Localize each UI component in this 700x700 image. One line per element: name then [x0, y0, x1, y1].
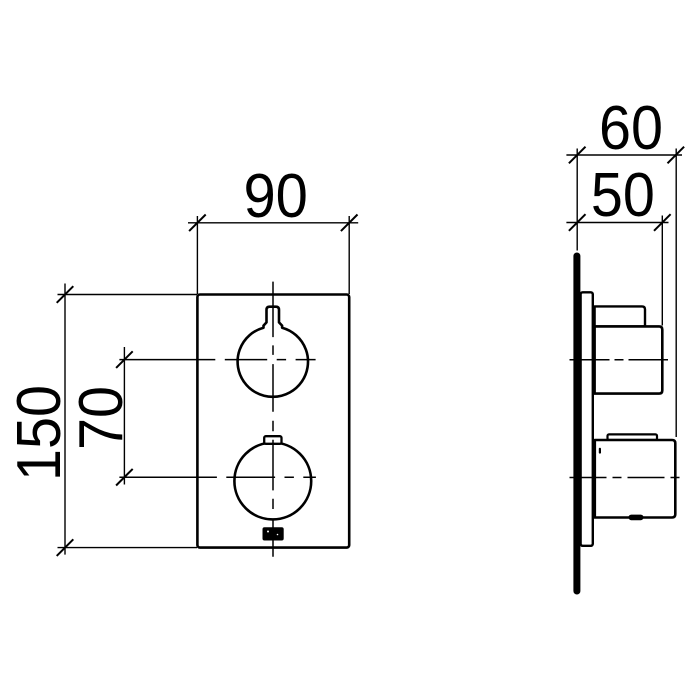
svg-text:90: 90: [243, 162, 308, 231]
svg-text:50: 50: [591, 161, 655, 230]
svg-text:60: 60: [599, 94, 663, 163]
svg-text:70: 70: [67, 386, 136, 450]
svg-text:150: 150: [5, 385, 74, 481]
